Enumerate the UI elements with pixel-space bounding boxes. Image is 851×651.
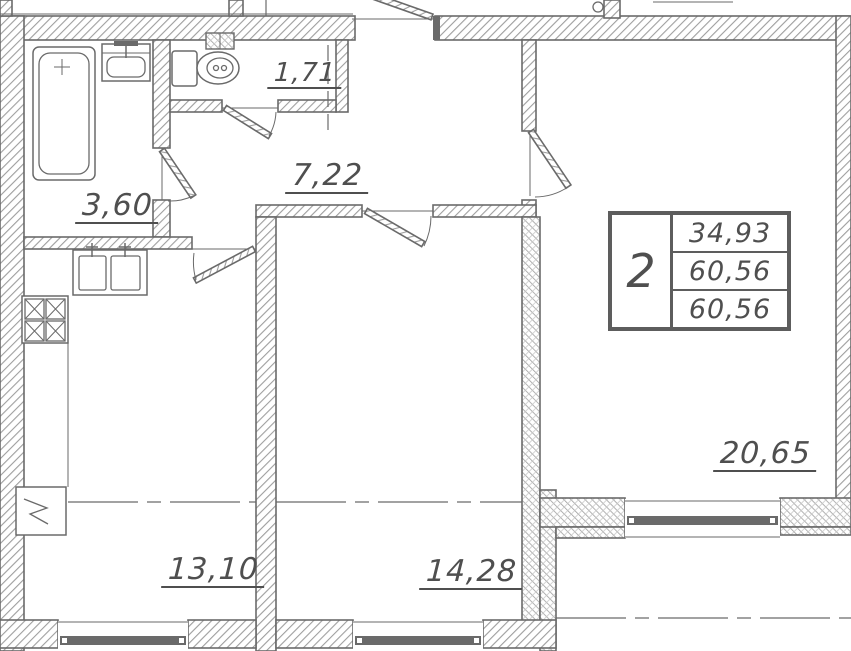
kitchen-window [58,621,188,651]
wall-bedroom-top-left [256,205,362,217]
bathtub [33,47,95,180]
wall-left [0,16,24,651]
stamp-area-value-2: 60,56 [673,251,787,289]
floor-plan: 3,60 1,71 7,22 13,10 14,28 20,65 2 34,93… [0,0,851,651]
bedroom-window [353,621,483,651]
room-area-hallway: 7,22 [285,160,370,194]
wall-wc-bottom-right [278,100,336,112]
wall-bedroom-top-right [433,205,536,217]
kitchen-sink [73,243,147,295]
stamp-area-value-3: 60,56 [673,289,787,327]
stamp-rooms-number: 2 [612,215,673,327]
wall-bathroom-bottom [24,237,192,249]
wall-bathroom-right-upper [153,40,170,148]
wall-stub-b [604,0,620,18]
toilet [172,51,239,86]
wall-living-bottom-pier-left [540,498,625,527]
living-room-door [529,129,571,197]
stove [22,296,68,343]
room-area-bathroom: 3,60 [75,190,160,224]
kitchen-door [192,246,256,283]
wall-balcony-band-left [556,527,625,538]
refrigerator [16,487,66,535]
wall-bottom-pier-1 [0,620,58,648]
room-area-living: 20,65 [713,438,818,472]
wall-bedroom-right [522,217,540,645]
wash-basin [102,41,150,81]
stamp-area-rows: 34,93 60,56 60,56 [673,215,787,327]
wall-living-bottom-pier-right [780,498,851,527]
wall-right [836,16,851,527]
vent-box [206,33,234,49]
bathroom-door [160,148,196,201]
neighbor-door-hinge [593,2,603,12]
wall-bottom-pier-2 [188,620,256,648]
wall-wc-bottom-left [170,100,222,112]
wc-door [222,105,278,138]
wall-top-right [435,16,851,40]
room-area-wc: 1,71 [267,60,342,89]
room-area-bedroom: 14,28 [419,556,524,590]
living-room-window [625,499,780,538]
bedroom-door [362,208,433,246]
wall-bottom-pier-4 [483,620,556,648]
stamp-area-value-1: 34,93 [673,215,787,251]
apartment-stamp: 2 34,93 60,56 60,56 [608,211,791,331]
entrance-jamb-post [433,16,440,40]
wall-bottom-pier-3 [276,620,353,648]
wall-top-left [0,16,355,40]
entrance-door [352,0,434,20]
room-area-kitchen: 13,10 [161,554,266,588]
wall-hall-living-upper [522,40,536,131]
wall-balcony-band-right [780,527,851,535]
